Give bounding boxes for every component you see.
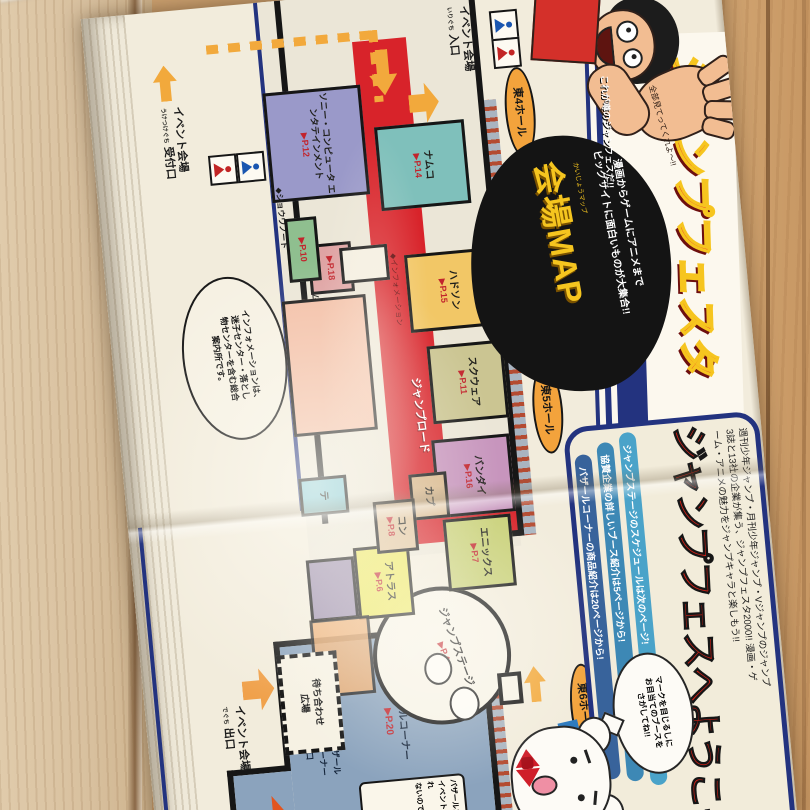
booth-page-ref: ▶P.10	[296, 237, 309, 262]
booth-te: テ	[298, 475, 349, 517]
booth-name: テ	[318, 490, 330, 501]
stage-notch	[497, 671, 524, 705]
event-exit-label: イベント会場	[233, 705, 251, 772]
booth-unreadable-purple	[306, 556, 360, 622]
booth-page-ref: ▶P.11	[456, 370, 469, 395]
booth-enix: エニックス ▶P.7	[443, 514, 517, 592]
booth-square: スクウェア ▶P.11	[426, 340, 509, 425]
dog-bow-right	[516, 768, 543, 800]
ruby: でぐち	[221, 707, 229, 726]
booth-page-ref: ▶P.18	[324, 255, 337, 280]
booth-name: コン	[395, 515, 408, 536]
caution-note: バザールコーナーから	[447, 778, 465, 810]
meeting-plaza-label: 広場	[297, 693, 312, 713]
booth-name: バンダイ	[472, 455, 487, 496]
luffy-red-vest	[530, 0, 601, 64]
booth-showa-note: ▶P.10	[284, 216, 322, 283]
restroom-men-icon	[236, 151, 267, 183]
booth-atlus: アトラス ▶P.6	[353, 543, 415, 620]
booth-page-ref: ▶P.6	[372, 572, 385, 592]
booth-sony: ソニー・コンピュータ エンタテインメント ▶P.12	[262, 85, 370, 204]
booth-page-ref: ▶P.16	[462, 464, 475, 489]
booth-name: カプ	[423, 485, 436, 506]
arrow-left-icon	[522, 665, 547, 703]
photo-of-jump-festa-2000-venue-map-pamphlet-on-wooden-table: ジャンプロード ◆インフォメーション バザールコーナー ▶P.20 バザール コ…	[0, 0, 810, 810]
booth-capcom-lower: コン ▶P.8	[373, 498, 420, 554]
plank-gap-line	[802, 0, 806, 810]
ruby: うけつけぐち	[159, 108, 168, 144]
pamphlet-spread: ジャンプロード ◆インフォメーション バザールコーナー ▶P.20 バザール コ…	[81, 0, 798, 810]
bazaar-page-ref: ▶P.20	[382, 708, 395, 736]
booth-page-ref: ▶P.7	[468, 543, 481, 563]
booth-name: アトラス	[382, 561, 397, 602]
booth-page-ref: ▶P.14	[411, 153, 424, 178]
booth-page-ref: ▶P.15	[436, 278, 449, 303]
right-page-border-line	[138, 528, 174, 810]
small-white-structure	[339, 244, 390, 284]
kaijo-map-title: 会場MAP	[525, 157, 598, 308]
booth-name: ハドソン	[447, 269, 462, 310]
booth-page-ref: ▶P.8	[384, 517, 397, 537]
booth-page-ref: ▶P.12	[299, 132, 312, 157]
arrow-down-icon	[241, 667, 277, 712]
bazaar-corner-area-lower	[233, 771, 299, 810]
event-entrance-label: 入口	[447, 33, 461, 56]
dog-bow-knot	[521, 757, 534, 770]
restroom-women-icon	[208, 153, 239, 185]
booth-large-unreadable	[282, 294, 378, 437]
ruby: いりぐち	[445, 7, 453, 31]
arrow-left-icon	[151, 65, 178, 103]
meeting-plaza-label: 待ち合わせ	[309, 678, 326, 727]
booth-namco: ナムコ ▶P.14	[374, 119, 471, 211]
event-exit-label: 出口	[222, 727, 236, 750]
